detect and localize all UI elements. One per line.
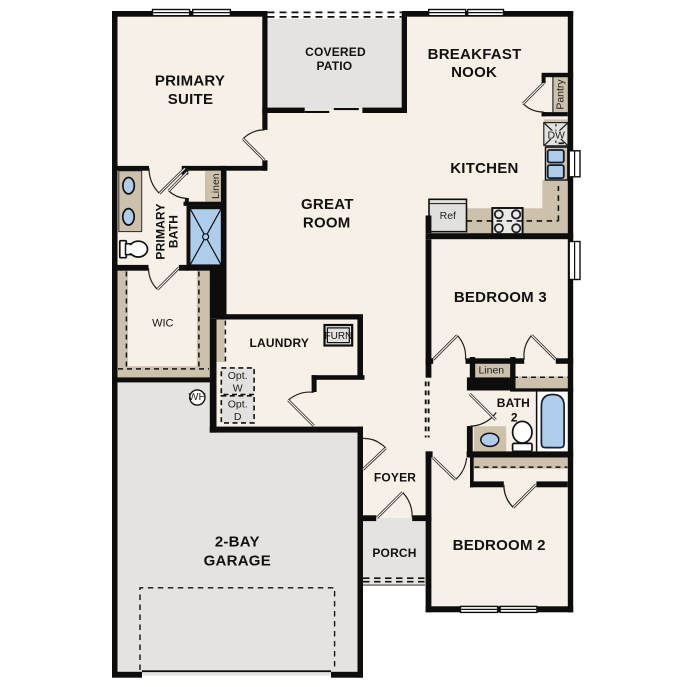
svg-text:BEDROOM 3: BEDROOM 3 — [454, 289, 547, 306]
svg-text:WIC: WIC — [152, 318, 173, 330]
svg-text:LAUNDRY: LAUNDRY — [249, 336, 309, 350]
svg-text:ROOM: ROOM — [303, 215, 351, 232]
svg-text:Pantry: Pantry — [554, 79, 566, 110]
svg-text:Linen: Linen — [210, 173, 222, 199]
svg-text:BATH: BATH — [167, 215, 181, 248]
svg-text:PORCH: PORCH — [372, 546, 416, 560]
svg-text:KITCHEN: KITCHEN — [450, 160, 518, 177]
svg-text:PATIO: PATIO — [316, 59, 352, 73]
svg-text:BREAKFAST: BREAKFAST — [428, 46, 522, 63]
svg-text:FOYER: FOYER — [374, 471, 416, 485]
svg-text:BATH: BATH — [497, 396, 530, 410]
svg-text:SUITE: SUITE — [168, 91, 213, 108]
svg-text:NOOK: NOOK — [451, 64, 497, 81]
svg-text:Opt.: Opt. — [228, 399, 248, 411]
svg-text:WH: WH — [189, 391, 207, 403]
svg-text:PRIMARY: PRIMARY — [154, 203, 168, 259]
svg-text:DW: DW — [547, 129, 565, 141]
svg-text:Opt.: Opt. — [228, 370, 248, 382]
svg-text:GREAT: GREAT — [301, 196, 354, 213]
svg-text:FURN: FURN — [325, 331, 353, 342]
svg-text:W: W — [233, 383, 243, 395]
svg-text:COVERED: COVERED — [305, 45, 366, 59]
svg-text:2: 2 — [511, 411, 518, 425]
svg-text:GARAGE: GARAGE — [204, 552, 271, 569]
svg-text:Linen: Linen — [478, 365, 504, 377]
svg-text:BEDROOM 2: BEDROOM 2 — [453, 537, 546, 554]
svg-text:2-BAY: 2-BAY — [215, 534, 260, 551]
svg-text:PRIMARY: PRIMARY — [155, 73, 225, 90]
svg-text:Ref: Ref — [440, 210, 456, 222]
svg-text:D: D — [234, 411, 242, 423]
